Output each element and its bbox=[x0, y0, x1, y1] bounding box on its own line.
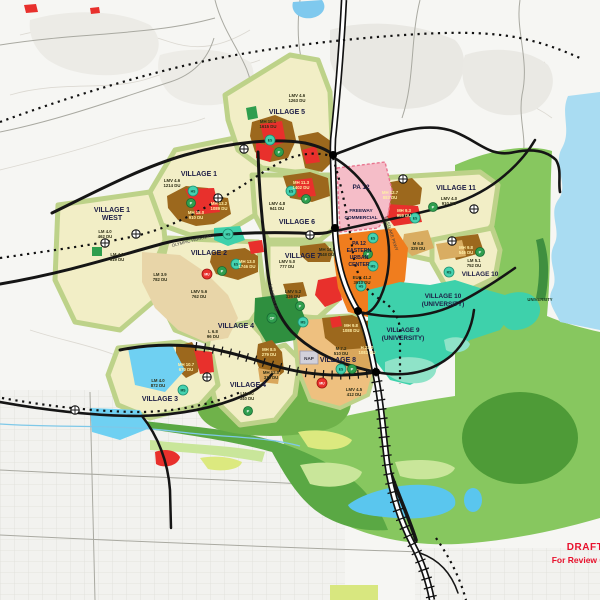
village-label-village-6: VILLAGE 6 bbox=[279, 219, 315, 226]
svg-text:UNIVERSITY: UNIVERSITY bbox=[527, 297, 552, 302]
junction-dot bbox=[372, 368, 380, 376]
interchange-icon bbox=[203, 373, 211, 381]
parcel-label: MH 8.5279 DU bbox=[262, 347, 277, 357]
nap-parcel: NAP bbox=[300, 351, 318, 364]
bottom-pond-small bbox=[464, 488, 482, 512]
svg-text:VILLAGE 9: VILLAGE 9 bbox=[386, 327, 419, 334]
svg-text:883 DU: 883 DU bbox=[383, 195, 398, 200]
svg-text:462 DU: 462 DU bbox=[98, 234, 113, 239]
parcel-label: LM 4.0872 DU bbox=[151, 378, 166, 388]
svg-text:PA 12: PA 12 bbox=[352, 184, 369, 191]
svg-text:96 DU: 96 DU bbox=[207, 334, 219, 339]
p-symbol-icon: P bbox=[218, 267, 227, 276]
village-label-village-11: VILLAGE 11 bbox=[436, 185, 476, 192]
svg-text:1402 DU: 1402 DU bbox=[293, 185, 310, 190]
p-symbol-icon: P bbox=[244, 407, 253, 416]
svg-text:MS: MS bbox=[370, 264, 376, 268]
ms-symbol-icon: MS bbox=[298, 317, 308, 327]
svg-text:P: P bbox=[432, 204, 435, 209]
svg-text:762 DU: 762 DU bbox=[192, 294, 207, 299]
svg-text:P: P bbox=[305, 196, 308, 201]
svg-text:872 DU: 872 DU bbox=[151, 383, 166, 388]
interchange-icon bbox=[240, 145, 248, 153]
svg-text:P: P bbox=[351, 366, 354, 371]
svg-text:3910 DU: 3910 DU bbox=[354, 280, 371, 285]
es-symbol-icon: ES bbox=[336, 364, 346, 374]
parcel-label: LM 4.0619 DU bbox=[110, 252, 125, 262]
village-label-village-9-university: VILLAGE 9(UNIVERSITY) bbox=[382, 327, 425, 342]
es-symbol-icon: ES bbox=[410, 213, 420, 223]
svg-text:777 DU: 777 DU bbox=[280, 264, 295, 269]
svg-text:WEST: WEST bbox=[102, 215, 123, 222]
parcel-label: LMV 5.6762 DU bbox=[191, 289, 208, 299]
parcel-label: LMV 4.61214 DU bbox=[164, 178, 181, 188]
junction-dot bbox=[331, 224, 339, 232]
village-label-village-10-university: VILLAGE 10(UNIVERSITY) bbox=[422, 293, 465, 308]
svg-text:RS: RS bbox=[447, 270, 452, 274]
interchange-icon bbox=[470, 205, 478, 213]
mu-symbol-icon: MU bbox=[202, 269, 212, 279]
p-symbol-icon: P bbox=[296, 302, 305, 311]
svg-text:FREEWAY: FREEWAY bbox=[349, 208, 373, 214]
svg-text:279 DU: 279 DU bbox=[262, 352, 277, 357]
svg-text:1263 DU: 1263 DU bbox=[289, 98, 306, 103]
parcel-label: MH 9.8546 DU bbox=[459, 245, 474, 255]
svg-text:752 DU: 752 DU bbox=[467, 263, 482, 268]
parcel-label: LM 4.0340 DU bbox=[240, 391, 255, 401]
svg-text:315 DU: 315 DU bbox=[264, 375, 279, 380]
svg-text:VILLAGE 8: VILLAGE 8 bbox=[320, 357, 356, 364]
svg-text:P: P bbox=[247, 408, 250, 413]
junction-dot bbox=[329, 151, 337, 159]
parcel-label: M 7.2510 DU bbox=[334, 346, 349, 356]
svg-text:ES: ES bbox=[413, 216, 418, 220]
village-label-village-8: VILLAGE 8 bbox=[320, 357, 356, 364]
village-label-village-3: VILLAGE 3 bbox=[142, 396, 178, 403]
svg-text:546 DU: 546 DU bbox=[459, 250, 474, 255]
parcel-label: MH 18.0910 DU bbox=[188, 210, 205, 220]
svg-text:URBAN: URBAN bbox=[350, 255, 369, 261]
svg-text:VILLAGE 11: VILLAGE 11 bbox=[436, 185, 476, 192]
parcel-label: MH 13.21089 DU bbox=[211, 201, 228, 211]
parcel-label: MH 12.0315 DU bbox=[263, 370, 280, 380]
svg-text:910 DU: 910 DU bbox=[189, 215, 204, 220]
interchange-icon bbox=[399, 175, 407, 183]
svg-text:VILLAGE 3: VILLAGE 3 bbox=[142, 396, 178, 403]
p-symbol-icon: P bbox=[275, 148, 284, 157]
parcel-label: MH 9.81088 DU bbox=[343, 323, 360, 333]
svg-text:MU: MU bbox=[204, 272, 210, 276]
parcel-label: LMV 4.5412 DU bbox=[346, 387, 363, 397]
village-label-village-5: VILLAGE 5 bbox=[269, 109, 305, 116]
parcel-label: LMV 5.2336 DU bbox=[285, 289, 302, 299]
parcel-label: L 6.896 DU bbox=[207, 329, 219, 339]
svg-text:336 DU: 336 DU bbox=[286, 294, 301, 299]
mu-symbol-icon: MU bbox=[317, 378, 327, 388]
interchange-icon bbox=[101, 239, 109, 247]
parcel-label: M 6.8329 DU bbox=[411, 241, 426, 251]
p-symbol-icon: P bbox=[302, 195, 311, 204]
village-label-village-10: VILLAGE 10 bbox=[462, 271, 499, 278]
parcel-label: LM 5.1752 DU bbox=[467, 258, 482, 268]
parcel-label: MH 10.7670 DU bbox=[178, 362, 195, 372]
village-label-village-2: VILLAGE 2 bbox=[191, 250, 227, 257]
p-symbol-icon: P bbox=[429, 203, 438, 212]
svg-text:ES: ES bbox=[268, 138, 273, 142]
village-label-pa-12: PA 12 bbox=[352, 184, 369, 191]
parcel-label: LMV 5.0777 DU bbox=[279, 259, 296, 269]
nap-label: NAP bbox=[304, 356, 314, 361]
interchange-icon bbox=[132, 230, 140, 238]
svg-text:VILLAGE 5: VILLAGE 5 bbox=[269, 109, 305, 116]
parcel-label: MH 12.7883 DU bbox=[382, 190, 399, 200]
parcel-label: MH 11.31402 DU bbox=[293, 180, 310, 190]
hs-symbol-icon: HS bbox=[223, 229, 233, 239]
svg-text:VILLAGE 4: VILLAGE 4 bbox=[218, 323, 254, 330]
svg-text:CENTER: CENTER bbox=[348, 262, 370, 268]
svg-text:VILLAGE 2: VILLAGE 2 bbox=[191, 250, 227, 257]
svg-text:HS: HS bbox=[226, 232, 231, 236]
parcel-label: LMV 4.8941 DU bbox=[269, 201, 286, 211]
parcel-label: EUC 41.23910 DU bbox=[353, 275, 372, 285]
p-symbol-icon: P bbox=[348, 365, 357, 374]
preserve-dark-patch bbox=[462, 392, 578, 484]
svg-text:1746 DU: 1746 DU bbox=[239, 264, 256, 269]
svg-text:941 DU: 941 DU bbox=[270, 206, 285, 211]
v1w-park-square bbox=[92, 247, 102, 256]
parcel-label: LM 3.9782 DU bbox=[153, 272, 168, 282]
svg-text:COMMERCIAL: COMMERCIAL bbox=[344, 215, 377, 221]
village-label-village-7: VILLAGE 7 bbox=[285, 253, 321, 260]
svg-text:PA 12: PA 12 bbox=[352, 241, 366, 247]
parcel-label: MH 14.5448 DU bbox=[319, 247, 336, 257]
svg-text:P: P bbox=[278, 149, 281, 154]
svg-text:1083 DU: 1083 DU bbox=[359, 350, 376, 355]
svg-text:VILLAGE 7: VILLAGE 7 bbox=[285, 253, 321, 260]
parcel-label: LMV 4.61263 DU bbox=[289, 93, 306, 103]
svg-text:VILLAGE 10: VILLAGE 10 bbox=[425, 293, 462, 300]
svg-text:959 DU: 959 DU bbox=[397, 213, 412, 218]
svg-text:1088 DU: 1088 DU bbox=[343, 328, 360, 333]
svg-text:340 DU: 340 DU bbox=[240, 396, 255, 401]
p-symbol-icon: P bbox=[476, 248, 485, 257]
es-symbol-icon: ES bbox=[368, 233, 378, 243]
hs-symbol-icon: HS bbox=[188, 186, 198, 196]
village-label-village-4: VILLAGE 4 bbox=[218, 323, 254, 330]
svg-text:619 DU: 619 DU bbox=[110, 257, 125, 262]
village-label-village-4-south: VILLAGE 4 bbox=[230, 382, 266, 389]
svg-text:VILLAGE 4: VILLAGE 4 bbox=[230, 382, 266, 389]
svg-text:MS: MS bbox=[180, 388, 186, 392]
rs-symbol-icon: RS bbox=[444, 267, 454, 277]
draft-line2: For Review Only bbox=[530, 555, 600, 566]
svg-text:ES: ES bbox=[339, 367, 344, 371]
v5-green-square bbox=[246, 106, 258, 120]
parcel-label: MH 13.01746 DU bbox=[239, 259, 256, 269]
interchange-icon bbox=[306, 231, 314, 239]
svg-text:1089 DU: 1089 DU bbox=[211, 206, 228, 211]
svg-text:MU: MU bbox=[319, 381, 325, 385]
village-label-university: UNIVERSITY bbox=[527, 297, 552, 302]
svg-text:910 DU: 910 DU bbox=[442, 201, 457, 206]
draft-line1: DRAFT bbox=[530, 542, 600, 555]
svg-text:VILLAGE 6: VILLAGE 6 bbox=[279, 219, 315, 226]
svg-text:329 DU: 329 DU bbox=[411, 246, 426, 251]
es-symbol-icon: ES bbox=[265, 135, 275, 145]
svg-text:448 DU: 448 DU bbox=[320, 252, 335, 257]
svg-text:HS: HS bbox=[359, 284, 364, 288]
svg-text:EASTERN: EASTERN bbox=[347, 248, 372, 254]
svg-text:(UNIVERSITY): (UNIVERSITY) bbox=[422, 301, 465, 308]
svg-text:P: P bbox=[479, 249, 482, 254]
svg-text:510 DU: 510 DU bbox=[334, 351, 349, 356]
parcel-label: MH 9.3959 DU bbox=[397, 208, 412, 218]
village-label-village-1: VILLAGE 1 bbox=[181, 171, 217, 178]
svg-text:P: P bbox=[221, 268, 224, 273]
svg-text:782 DU: 782 DU bbox=[153, 277, 168, 282]
parcel-label: MH 10.11615 DU bbox=[260, 119, 277, 129]
svg-text:670 DU: 670 DU bbox=[179, 367, 194, 372]
parcel-label: LMV 4.0910 DU bbox=[441, 196, 458, 206]
svg-text:P: P bbox=[190, 200, 193, 205]
svg-text:CP: CP bbox=[270, 316, 275, 320]
map-canvas: NAP HSPESPESPHSESPMUPCPPMSMSESPMUESPMSHS… bbox=[0, 0, 600, 600]
interchange-icon bbox=[71, 406, 79, 414]
junction-dot bbox=[354, 307, 362, 315]
draft-watermark: DRAFT For Review Only bbox=[530, 542, 600, 565]
svg-text:MS: MS bbox=[300, 320, 306, 324]
cp-symbol-icon: CP bbox=[267, 313, 277, 323]
svg-text:HS: HS bbox=[191, 189, 196, 193]
svg-text:1615 DU: 1615 DU bbox=[260, 124, 277, 129]
parcel-label: LM 4.0462 DU bbox=[98, 229, 113, 239]
svg-text:VILLAGE 1: VILLAGE 1 bbox=[94, 207, 130, 214]
interchange-icon bbox=[448, 237, 456, 245]
svg-text:412 DU: 412 DU bbox=[347, 392, 362, 397]
svg-text:ES: ES bbox=[289, 189, 294, 193]
svg-text:P: P bbox=[299, 303, 302, 308]
svg-text:VILLAGE 1: VILLAGE 1 bbox=[181, 171, 217, 178]
svg-text:ES: ES bbox=[371, 236, 376, 240]
svg-text:(UNIVERSITY): (UNIVERSITY) bbox=[382, 335, 425, 342]
ms-symbol-icon: MS bbox=[178, 385, 188, 395]
land-use-map: NAP HSPESPESPHSESPMUPCPPMSMSESPMUESPMSHS… bbox=[0, 0, 600, 600]
svg-text:1214 DU: 1214 DU bbox=[164, 183, 181, 188]
p-symbol-icon: P bbox=[187, 199, 196, 208]
bottom-yellow-strip bbox=[330, 585, 378, 600]
svg-text:VILLAGE 10: VILLAGE 10 bbox=[462, 271, 499, 278]
parcel-label: H 23.01083 DU bbox=[359, 345, 376, 355]
